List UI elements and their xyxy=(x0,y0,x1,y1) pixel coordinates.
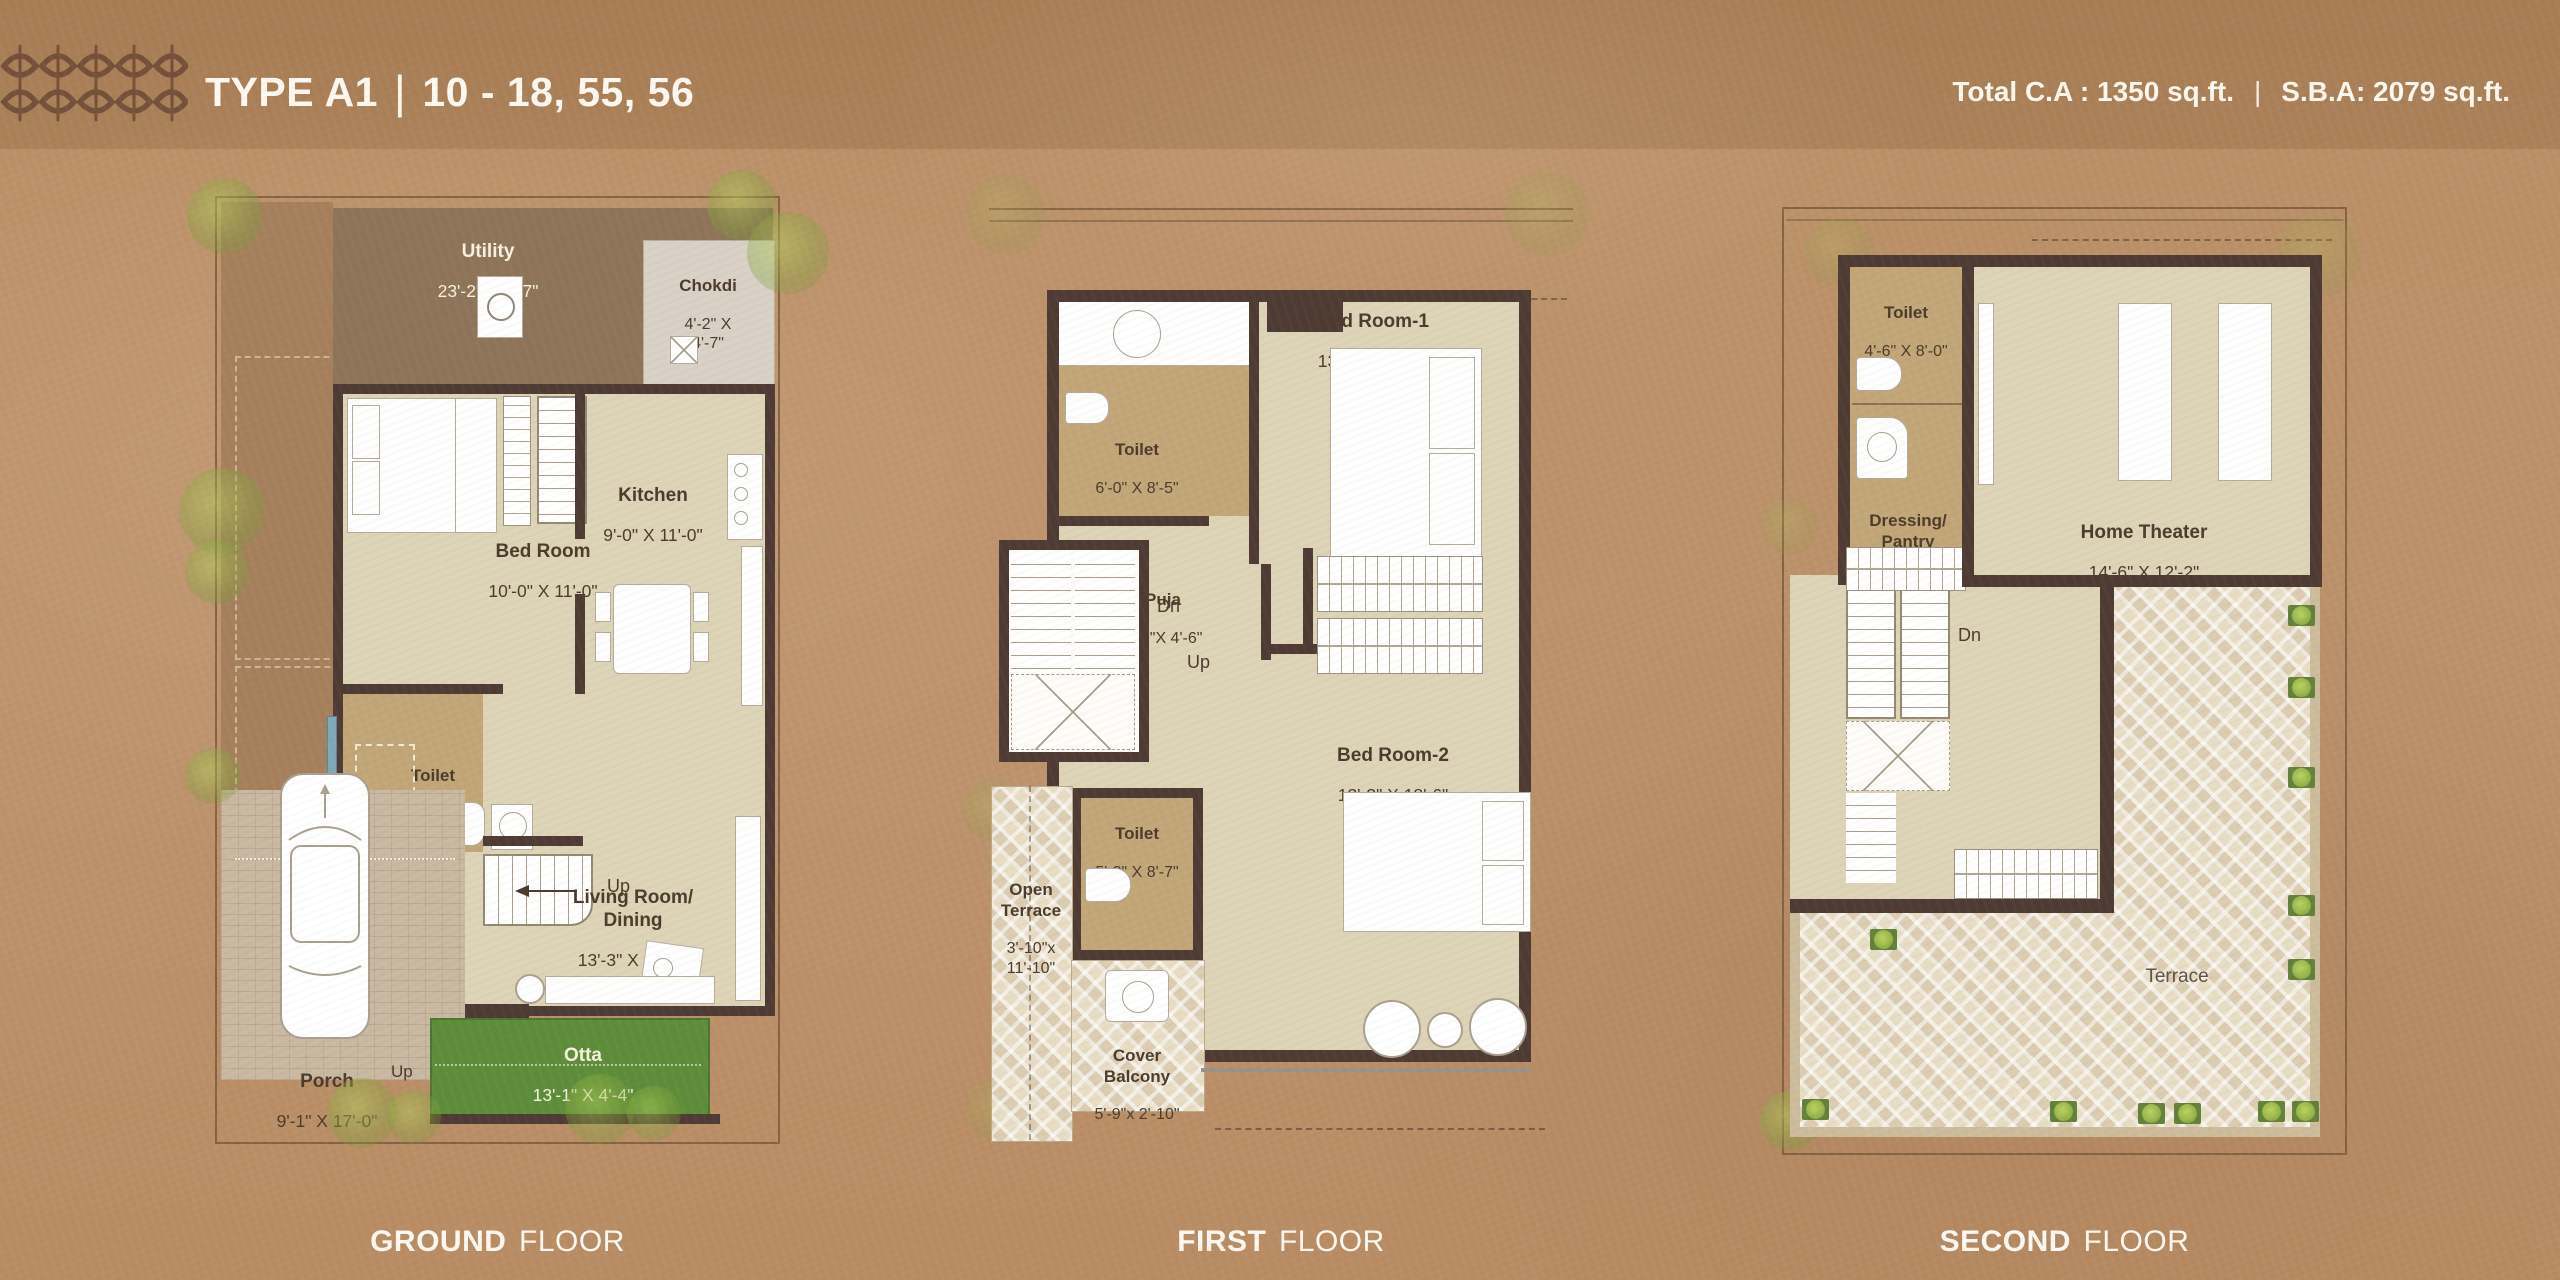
washbasin-icon-sf xyxy=(1856,417,1908,479)
washbasin-counter-icon xyxy=(1105,970,1169,1022)
room-label-kitchen: Kitchen 9'-0" X 11'-0" xyxy=(603,466,703,565)
washbasin-icon-ff xyxy=(1113,310,1161,358)
caption-first-floor: FIRSTFLOOR xyxy=(985,1222,1577,1262)
car-icon xyxy=(277,770,373,1042)
planter-icon xyxy=(2288,605,2315,626)
site-line-2 xyxy=(989,220,1573,222)
balcony-rail xyxy=(1201,1068,1531,1072)
room-label-toilet-ff-top: Toilet 6'-0" X 8'-5" xyxy=(1095,422,1178,516)
wardrobe-dressing-icon xyxy=(1846,547,1966,591)
up-arrow-icon xyxy=(515,884,579,898)
wc-icon-ff-bottom xyxy=(1085,868,1131,902)
door-panel xyxy=(1978,303,1994,485)
pillow-2 xyxy=(1482,865,1524,925)
tree-icon xyxy=(185,540,249,604)
planter-icon xyxy=(2258,1101,2285,1122)
stairs-landing xyxy=(1011,674,1135,750)
planter-icon xyxy=(2138,1103,2165,1124)
bed-icon xyxy=(347,398,497,533)
caption-second-floor: SECONDFLOOR xyxy=(1782,1222,2347,1262)
up-label-otta: Up xyxy=(391,1062,413,1082)
wc-icon-sf xyxy=(1856,357,1902,391)
wc-icon-ff-top xyxy=(1065,392,1109,424)
planter-icon xyxy=(1870,929,1897,950)
wall-puja-hall xyxy=(1261,564,1271,660)
tree-icon xyxy=(185,748,241,804)
tree-icon xyxy=(565,1074,635,1144)
planter-icon xyxy=(2288,895,2315,916)
stairs-flight-1 xyxy=(1846,589,1896,719)
planter-icon xyxy=(2288,767,2315,788)
dining-table-icon xyxy=(613,584,691,674)
tree-icon xyxy=(747,212,829,294)
planter-icon xyxy=(2174,1103,2201,1124)
room-label-terrace: Terrace xyxy=(2145,947,2208,1006)
basin-bowl-2 xyxy=(1122,981,1154,1013)
burner-2 xyxy=(734,487,748,501)
builder-logo-pattern-icon xyxy=(0,44,188,127)
planter-icon xyxy=(2050,1101,2077,1122)
planter-icon xyxy=(1802,1099,1829,1120)
stairs-flight-3 xyxy=(1846,793,1896,883)
floor-plan-sheet: TYPE A1|10 - 18, 55, 56 Total C.A : 1350… xyxy=(0,0,2560,1280)
page-title: TYPE A1|10 - 18, 55, 56 xyxy=(205,58,694,122)
title-units: 10 - 18, 55, 56 xyxy=(422,69,694,115)
tree-icon xyxy=(387,1090,441,1144)
theater-sofa-icon-2 xyxy=(2218,303,2272,481)
title-type: TYPE A1 xyxy=(205,69,378,115)
dn-label-ff: Dn xyxy=(1157,596,1180,617)
decor-icon xyxy=(653,958,673,978)
pillow xyxy=(352,405,380,459)
tree-icon xyxy=(1505,172,1589,256)
floor-drain-icon xyxy=(670,336,698,364)
stairs-flight-2 xyxy=(1075,552,1135,672)
site-line-2 xyxy=(1786,219,2343,221)
dining-chair-4 xyxy=(693,632,709,662)
dining-chair-1 xyxy=(595,592,611,622)
dining-chair-2 xyxy=(595,632,611,662)
toilet-divider xyxy=(1852,403,1962,405)
round-stool-icon xyxy=(1427,1012,1463,1048)
room-label-home-theater: Home Theater 14'-6" X 12'-2" xyxy=(2081,503,2208,602)
room-label-cover-balcony: Cover Balcony 5'-9"x 2'-10" xyxy=(1094,1028,1179,1143)
pillow-2 xyxy=(352,461,380,515)
tree-icon xyxy=(187,178,263,254)
dining-chair-3 xyxy=(693,592,709,622)
room-label-open-terrace: Open Terrace 3'-10"x 11'-10" xyxy=(1001,862,1061,997)
wardrobe-icon xyxy=(503,396,531,526)
title-separator: | xyxy=(378,66,422,118)
bed2-icon xyxy=(1343,792,1531,932)
tree-icon xyxy=(627,1086,681,1140)
wall-toilet-bed1 xyxy=(1249,302,1259,564)
planter-icon xyxy=(2288,959,2315,980)
pillow xyxy=(1482,801,1524,861)
stove-icon xyxy=(727,454,763,540)
wall-bed-kitchen xyxy=(575,394,585,539)
burner-1 xyxy=(734,463,748,477)
first-floor-plan: Toilet 6'-0" X 8'-5" Puja 6'-0"X 4'-6" B… xyxy=(985,200,1577,1148)
wall-bed-toilet xyxy=(343,684,503,694)
site-line-1 xyxy=(989,208,1573,210)
shadow-dash xyxy=(1215,1128,1545,1130)
stool-icon xyxy=(515,974,545,1004)
stairs-flight-1 xyxy=(1011,552,1071,672)
ground-floor-plan: Utility 23'-2" X 4'-7" Chokdi 4'-2" X 4'… xyxy=(215,196,780,1144)
up-label-ff: Up xyxy=(1187,652,1210,673)
theater-sofa-icon xyxy=(2118,303,2172,481)
wardrobe-bed2-icon xyxy=(1317,618,1483,674)
wardrobe-hall-icon xyxy=(1954,849,2098,899)
washing-machine-icon xyxy=(477,276,523,338)
wall-toilet-puja xyxy=(1059,516,1209,526)
bed-fold xyxy=(455,399,496,532)
room-label-bedroom: Bed Room 10'-0" X 11'-0" xyxy=(488,522,597,621)
area-stats: Total C.A : 1350 sq.ft.|S.B.A: 2079 sq.f… xyxy=(1952,72,2510,112)
burner-3 xyxy=(734,511,748,525)
pillow-2 xyxy=(1429,453,1475,545)
kitchen-counter xyxy=(741,546,763,706)
tree-icon xyxy=(1762,499,1818,555)
second-floor-plan: Terrace Dn Toilet 4'-6" X 8'-0" Dressing… xyxy=(1782,207,2347,1155)
caption-ground-floor: GROUNDFLOOR xyxy=(215,1222,780,1262)
tv-unit-icon xyxy=(545,976,715,1004)
stairs-landing xyxy=(1846,721,1950,791)
wardrobe-bed1-icon xyxy=(1317,556,1483,612)
stat-carpet-area: Total C.A : 1350 sq.ft. xyxy=(1952,76,2234,107)
stats-separator: | xyxy=(2234,76,2281,107)
bed1-icon xyxy=(1330,348,1482,560)
dn-label-sf: Dn xyxy=(1958,625,1981,646)
round-table-icon-2 xyxy=(1469,998,1527,1056)
wall-toilet-living xyxy=(483,836,583,846)
wall-bed1-hall xyxy=(1303,548,1313,648)
basin-bowl xyxy=(1867,432,1897,462)
stat-super-builtup-area: S.B.A: 2079 sq.ft. xyxy=(2281,76,2510,107)
planter-icon xyxy=(2292,1101,2319,1122)
round-table-icon xyxy=(1363,1000,1421,1058)
tree-icon xyxy=(967,176,1045,254)
pillow xyxy=(1429,357,1475,449)
stairs-flight-2 xyxy=(1900,589,1950,719)
sofa-icon xyxy=(735,816,761,1001)
planter-icon xyxy=(2288,677,2315,698)
washer-drum xyxy=(487,293,515,321)
